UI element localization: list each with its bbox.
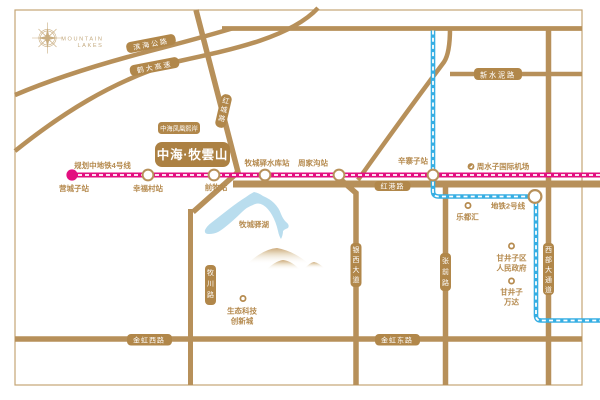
svg-text:张前路: 张前路: [442, 256, 449, 287]
svg-text:甘井子: 甘井子: [500, 287, 523, 297]
svg-text:地铁2号线: 地铁2号线: [491, 201, 526, 211]
svg-text:牧川路: 牧川路: [207, 268, 214, 299]
svg-text:中海凤凰熙岸: 中海凤凰熙岸: [160, 124, 198, 133]
svg-text:MOUNTAIN: MOUNTAIN: [61, 37, 103, 43]
svg-text:幸福村站: 幸福村站: [133, 183, 163, 193]
svg-text:金虹东路: 金虹东路: [381, 336, 413, 345]
svg-text:规划中地铁4号线: 规划中地铁4号线: [74, 160, 131, 170]
svg-text:创新城: 创新城: [230, 316, 254, 326]
svg-text:西部大通道: 西部大通道: [545, 246, 552, 294]
svg-text:乐都汇: 乐都汇: [456, 212, 479, 222]
svg-text:新水泥路: 新水泥路: [480, 70, 516, 79]
svg-text:红港路: 红港路: [381, 182, 405, 191]
svg-text:周家沟站: 周家沟站: [298, 158, 328, 168]
svg-text:牧城驿水库站: 牧城驿水库站: [245, 158, 290, 168]
svg-text:万达: 万达: [503, 297, 519, 307]
svg-text:营城子站: 营城子站: [59, 183, 89, 193]
svg-text:牧城驿湖: 牧城驿湖: [239, 219, 269, 229]
svg-text:中海·牧雲山: 中海·牧雲山: [157, 147, 228, 162]
svg-text:甘井子区: 甘井子区: [497, 253, 527, 263]
svg-text:人民政府: 人民政府: [497, 263, 527, 273]
svg-text:周水子国际机场: 周水子国际机场: [477, 161, 530, 171]
svg-text:生态科技: 生态科技: [227, 306, 257, 316]
svg-text:辛寨子站: 辛寨子站: [398, 156, 428, 166]
svg-text:金虹西路: 金虹西路: [133, 336, 165, 345]
svg-text:LAKES: LAKES: [77, 43, 103, 49]
svg-text:前牧站: 前牧站: [205, 182, 228, 192]
